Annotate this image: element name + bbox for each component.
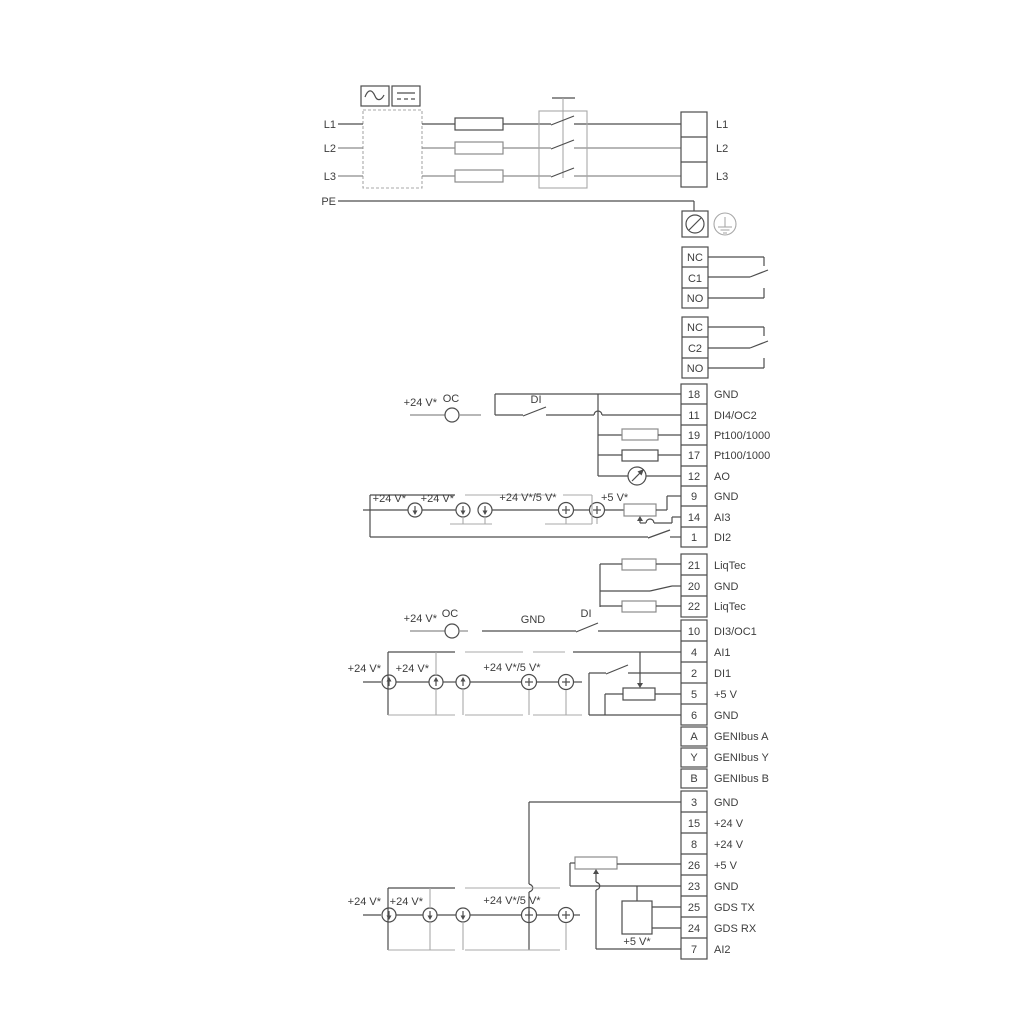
terminal-number: 21 xyxy=(688,560,700,572)
relay1-no: NO xyxy=(687,293,704,305)
terminal-label: AI2 xyxy=(714,944,731,956)
terminal-number: B xyxy=(690,773,697,785)
plus24v-5v-label: +24 V*/5 V* xyxy=(483,895,541,907)
relay2-contact xyxy=(708,327,768,368)
filter-box xyxy=(363,110,422,188)
di4-oc2-wiring: +24 V* OC DI xyxy=(404,393,681,476)
gds-sensor-box xyxy=(622,901,652,934)
terminal-label: GND xyxy=(714,881,739,893)
terminal-label: GND xyxy=(714,710,739,722)
current-source-icon xyxy=(429,675,443,689)
liqtec-sensors xyxy=(600,559,681,612)
ai1-sensor-options: +24 V* +24 V* +24 V*/5 V* xyxy=(348,652,681,715)
terminal-number: 15 xyxy=(688,818,700,830)
liqtec-strip: 21 LiqTec 20 GND 22 LiqTec xyxy=(600,554,746,617)
terminal-label: GENIbus A xyxy=(714,731,769,743)
plus-source-icon xyxy=(559,908,574,923)
terminal-label: DI1 xyxy=(714,668,731,680)
relay2-no: NO xyxy=(687,363,704,375)
relay1-block: NC C1 NO xyxy=(682,247,768,308)
relay2-nc: NC xyxy=(687,322,703,334)
current-source-icon xyxy=(456,675,470,689)
terminal-number: 22 xyxy=(688,601,700,613)
plus5v-label: +5 V* xyxy=(623,936,651,948)
oc-label: OC xyxy=(443,393,460,405)
pe-label: PE xyxy=(321,196,336,208)
plus24v-label: +24 V* xyxy=(348,663,382,675)
ai2-sensor-options: +24 V* +24 V* +24 V*/5 V* xyxy=(348,888,580,950)
terminal-label: DI2 xyxy=(714,532,731,544)
terminal-label: +24 V xyxy=(714,839,744,851)
terminal-number: 23 xyxy=(688,881,700,893)
main-switch xyxy=(539,98,587,188)
terminal-label: GDS RX xyxy=(714,923,757,935)
terminal-label: +5 V xyxy=(714,860,738,872)
liqtec-sensor-2 xyxy=(622,601,656,612)
plus24v-label: +24 V* xyxy=(373,493,407,505)
ao-wiring xyxy=(598,467,681,485)
gds-sensor: +5 V* xyxy=(622,886,681,948)
terminal-label: GENIbus Y xyxy=(714,752,769,764)
pt100-sensor-2 xyxy=(622,450,658,461)
liqtec-sensor-1 xyxy=(622,559,656,570)
current-source-icon xyxy=(408,503,422,517)
pt100-wiring xyxy=(598,429,681,461)
terminal-number: 1 xyxy=(691,532,697,544)
mains-terminal-block: L1 L2 L3 xyxy=(681,112,728,187)
di2-switch xyxy=(370,530,681,538)
plus5v-label: +5 V* xyxy=(601,492,629,504)
wiring-diagram-page: L1 L2 L3 PE xyxy=(0,0,1024,1024)
terminal-label: GDS TX xyxy=(714,902,755,914)
terminal-number: 2 xyxy=(691,668,697,680)
fuse-l1 xyxy=(455,118,503,130)
plus24v-label: +24 V* xyxy=(396,663,430,675)
current-source-icon xyxy=(423,908,437,922)
terminal-label: GND xyxy=(714,797,739,809)
terminal-number: A xyxy=(690,731,698,743)
current-source-icon xyxy=(456,908,470,922)
terminal-label: GND xyxy=(714,581,739,593)
oc-label: OC xyxy=(442,608,459,620)
fuse-l2 xyxy=(455,142,503,154)
current-source-icon xyxy=(382,908,396,922)
terminal-number: 5 xyxy=(691,689,697,701)
terminal-number: 26 xyxy=(688,860,700,872)
relay1-nc: NC xyxy=(687,252,703,264)
terminal-label: AO xyxy=(714,471,730,483)
terminal-number: 8 xyxy=(691,839,697,851)
earth-symbol-icon xyxy=(714,213,736,235)
di1-switch xyxy=(589,665,681,715)
terminal-label: AI1 xyxy=(714,647,731,659)
phase-label-l3-right: L3 xyxy=(716,171,728,183)
ac-symbol-icon xyxy=(361,86,389,106)
terminal-number: 24 xyxy=(688,923,700,935)
terminal-label: DI4/OC2 xyxy=(714,410,757,422)
terminal-label: GND xyxy=(714,491,739,503)
pe-wire xyxy=(338,201,694,211)
terminal-label: Pt100/1000 xyxy=(714,450,770,462)
plus24v-label: +24 V* xyxy=(421,493,455,505)
di-label: DI xyxy=(581,608,592,620)
terminal-number: 25 xyxy=(688,902,700,914)
terminal-number: 12 xyxy=(688,471,700,483)
open-collector-icon xyxy=(445,624,459,638)
di-label: DI xyxy=(531,394,542,406)
terminal-label: LiqTec xyxy=(714,601,746,613)
plus-source-icon xyxy=(559,675,574,690)
terminal-label: DI3/OC1 xyxy=(714,626,757,638)
terminal-strip-1: 18 GND 11 DI4/OC2 19 Pt100/1000 17 Pt100… xyxy=(681,384,770,547)
terminal-number: 7 xyxy=(691,944,697,956)
terminal-number: 17 xyxy=(688,450,700,462)
power-section: L1 L2 L3 PE xyxy=(321,86,736,237)
terminal-label: Pt100/1000 xyxy=(714,430,770,442)
dc-symbol-icon xyxy=(392,86,420,106)
terminal-number: 10 xyxy=(688,626,700,638)
terminal-number: 19 xyxy=(688,430,700,442)
plus24v-label: +24 V* xyxy=(348,896,382,908)
potentiometer-ai1 xyxy=(605,652,681,715)
plus-source-icon xyxy=(559,503,574,518)
terminal-number: 20 xyxy=(688,581,700,593)
terminal-number: 4 xyxy=(691,647,697,659)
phase-label-l1-left: L1 xyxy=(324,119,336,131)
terminal-label: GND xyxy=(714,389,739,401)
terminal-strip-2: 10 DI3/OC1 4 AI1 2 DI1 5 +5 V 6 GND A GE… xyxy=(681,620,769,788)
plus24v-label: +24 V* xyxy=(390,896,424,908)
gnd-label: GND xyxy=(521,614,546,626)
phase-wires xyxy=(338,124,681,176)
pt100-sensor-1 xyxy=(622,429,658,440)
phase-label-l2-left: L2 xyxy=(324,143,336,155)
ai3-sensor-options: +24 V* +24 V* +24 V*/5 V* +5 V* xyxy=(363,492,681,538)
relay2-block: NC C2 NO xyxy=(682,317,768,378)
terminal-number: 9 xyxy=(691,491,697,503)
plus-source-icon xyxy=(522,675,537,690)
wiring-diagram: L1 L2 L3 PE xyxy=(0,0,1024,1024)
pe-terminal xyxy=(682,211,708,237)
phase-label-l2-right: L2 xyxy=(716,143,728,155)
terminal-number: 14 xyxy=(688,512,700,524)
current-source-icon xyxy=(456,503,470,517)
plus24v-5v-label: +24 V*/5 V* xyxy=(483,662,541,674)
current-source-icon xyxy=(478,503,492,517)
terminal-number: 6 xyxy=(691,710,697,722)
phase-label-l3-left: L3 xyxy=(324,171,336,183)
terminal-strip-3: 3 GND 15 +24 V 8 +24 V 26 +5 V 23 GND 25… xyxy=(681,791,757,959)
phase-label-l1-right: L1 xyxy=(716,119,728,131)
terminal-label: GENIbus B xyxy=(714,773,769,785)
terminal-label: AI3 xyxy=(714,512,731,524)
relay2-c2: C2 xyxy=(688,343,702,355)
fuse-l3 xyxy=(455,170,503,182)
terminal-number: Y xyxy=(690,752,698,764)
relay1-contact xyxy=(708,257,768,298)
terminal-label: LiqTec xyxy=(714,560,746,572)
plus24v-label: +24 V* xyxy=(404,397,438,409)
plus24v-5v-label: +24 V*/5 V* xyxy=(499,492,557,504)
terminal-number: 18 xyxy=(688,389,700,401)
potentiometer-ai3 xyxy=(624,496,681,523)
open-collector-icon xyxy=(445,408,459,422)
terminal-number: 11 xyxy=(688,410,699,422)
relay1-c1: C1 xyxy=(688,273,702,285)
current-source-icon xyxy=(382,675,396,689)
plus24v-label: +24 V* xyxy=(404,613,438,625)
terminal-label: +24 V xyxy=(714,818,744,830)
terminal-label: +5 V xyxy=(714,689,738,701)
terminal-number: 3 xyxy=(691,797,697,809)
